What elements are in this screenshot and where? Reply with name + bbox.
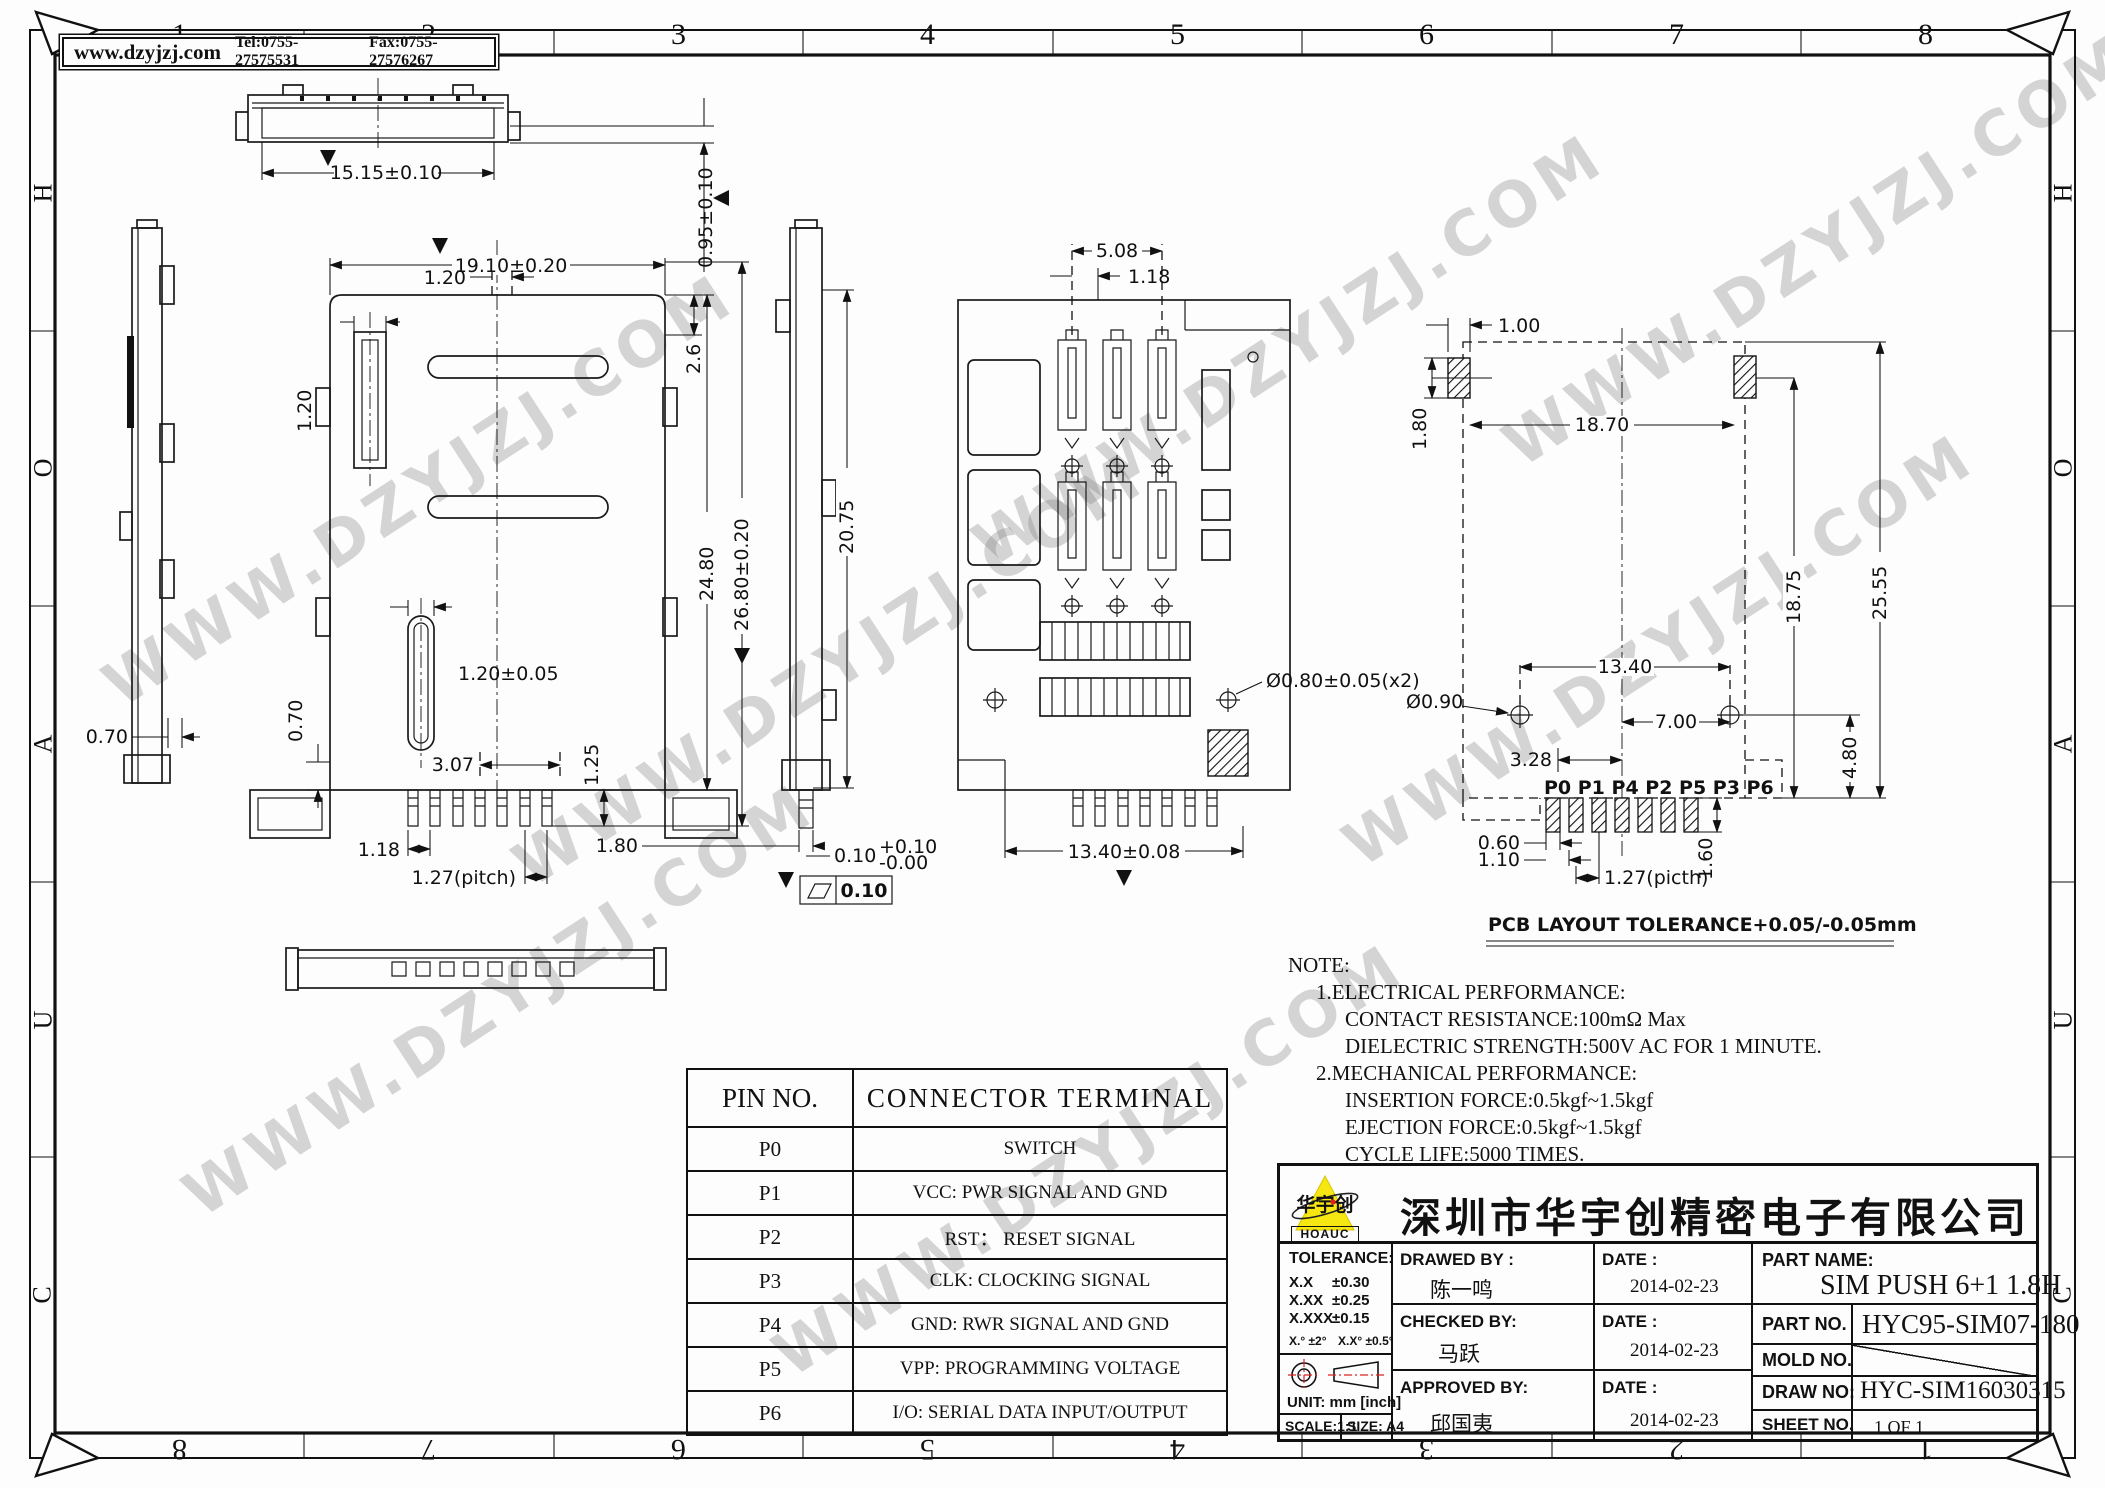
- dim-side-step: 0.70: [86, 726, 128, 748]
- zone-row: O: [2048, 459, 2078, 478]
- drawed-by-name: 陈一鸣: [1430, 1274, 1493, 1304]
- zone-col: 3: [671, 18, 686, 52]
- dim-main-307: 3.07: [432, 754, 474, 776]
- checked-by-name: 马跃: [1438, 1338, 1480, 1368]
- view-front: 5.08 1.18 Ø0.80±0.05(x2) 13.40±0.08: [958, 240, 1420, 886]
- note-title: NOTE:: [1288, 952, 1822, 979]
- zone-row: C: [28, 1286, 58, 1303]
- view-side-left: 0.70: [86, 220, 200, 783]
- dim-pcb-480: 4.80: [1839, 737, 1861, 779]
- date-label: DATE :: [1602, 1250, 1657, 1270]
- dim-main-width: 19.10±0.20: [455, 255, 568, 277]
- draw-no-label: DRAW NO:: [1762, 1382, 1855, 1403]
- zone-col: 8: [172, 1432, 187, 1466]
- dim-pcb-pitch: 1.27(picth): [1604, 867, 1708, 889]
- zone-col: 8: [1918, 18, 1933, 52]
- dim-pcb-100: 1.00: [1498, 315, 1540, 337]
- drawing-sheet: WWW.DZYJZJ.COM WWW.DZYJZJ.COM WWW.DZYJZJ…: [0, 0, 2105, 1488]
- pcb-tolerance-note: PCB LAYOUT TOLERANCE+0.05/-0.05mm: [1488, 914, 1917, 936]
- zone-col: 7: [1669, 18, 1684, 52]
- dim-main-switch-slot: 1.20±0.05: [458, 663, 559, 685]
- pcb-pin-labels: P0 P1 P4 P2 P5 P3 P6: [1544, 777, 1774, 799]
- mold-no-label: MOLD NO.: [1762, 1350, 1852, 1371]
- part-name-label: PART NAME:: [1762, 1250, 1874, 1271]
- zone-col: 5: [1170, 18, 1185, 52]
- dim-pcb-1340: 13.40: [1598, 656, 1652, 678]
- note-line: EJECTION FORCE:0.5kgf~1.5kgf: [1345, 1114, 1822, 1141]
- logo-brand-text: HOAUC: [1291, 1226, 1359, 1242]
- date-label: DATE :: [1602, 1378, 1657, 1398]
- table-row: P5VPP: PROGRAMMING VOLTAGE: [688, 1346, 1226, 1390]
- note-line: DIELECTRIC STRENGTH:500V AC FOR 1 MINUTE…: [1345, 1033, 1822, 1060]
- date-label: DATE :: [1602, 1312, 1657, 1332]
- tol-r2-label: X.XX: [1289, 1292, 1323, 1309]
- logo-cn-text: 华宇创: [1296, 1193, 1353, 1216]
- pin-no: P1: [688, 1172, 854, 1214]
- hoauc-logo: 华宇创 HOAUC: [1288, 1174, 1362, 1240]
- pin-no: P0: [688, 1128, 854, 1170]
- pin-no: P5: [688, 1348, 854, 1390]
- dim-pcb-1875: 18.75: [1783, 570, 1805, 624]
- pin-no: P3: [688, 1260, 854, 1302]
- approved-date: 2014-02-23: [1630, 1410, 1719, 1432]
- tol-r2-value: ±0.25: [1332, 1292, 1369, 1309]
- table-row: P0SWITCH: [688, 1126, 1226, 1170]
- pin-terminal: VCC: PWR SIGNAL AND GND: [854, 1172, 1226, 1214]
- table-row: P1VCC: PWR SIGNAL AND GND: [688, 1170, 1226, 1214]
- pin-table-header: PIN NO. CONNECTOR TERMINAL: [688, 1070, 1226, 1126]
- note-line: CONTACT RESISTANCE:100mΩ Max: [1345, 1006, 1822, 1033]
- view-top-profile: 15.15±0.10 0.95±0.10: [236, 78, 729, 272]
- zone-col: 4: [920, 18, 935, 52]
- header-contact-box: www.dzyjzj.com Tel:0755-27575531 Fax:075…: [62, 37, 496, 67]
- dim-front-width: 13.40±0.08: [1068, 841, 1181, 863]
- tol-r1-value: ±0.30: [1332, 1274, 1369, 1291]
- dim-top-width: 15.15±0.10: [330, 162, 443, 184]
- title-block: 华宇创 HOAUC 深圳市华宇创精密电子有限公司 TOLERANCE: X.X …: [1277, 1163, 2039, 1442]
- view-side-mid: 20.75 1.80 0.10 +0.10 -0.00 0.10: [596, 220, 938, 904]
- dim-flatness: 0.10: [841, 880, 888, 902]
- dim-side-len: 20.75: [836, 500, 858, 554]
- dim-front-hole: Ø0.80±0.05(x2): [1266, 670, 1420, 692]
- tol-r1-label: X.X: [1289, 1274, 1313, 1291]
- pin-terminal: RST： RESET SIGNAL: [854, 1216, 1226, 1258]
- zone-row: U: [2048, 1011, 2078, 1030]
- note-line: 2.MECHANICAL PERFORMANCE:: [1316, 1060, 1822, 1087]
- dim-main-slot: 1.20: [424, 267, 466, 289]
- dim-pcb-110: 1.10: [1478, 849, 1520, 871]
- zone-row: H: [2048, 184, 2078, 203]
- dim-main-corner: 2.6: [683, 344, 705, 374]
- projection-symbol: [1286, 1358, 1388, 1392]
- dim-main-step: 0.70: [285, 700, 307, 742]
- zone-row: O: [28, 459, 58, 478]
- unit-label: UNIT: mm [inch]: [1287, 1394, 1401, 1411]
- checked-by-label: CHECKED BY:: [1400, 1312, 1517, 1332]
- dim-side-180: 1.80: [596, 835, 638, 857]
- dim-front-118: 1.18: [1128, 266, 1170, 288]
- zone-row: H: [28, 184, 58, 203]
- dim-front-508: 5.08: [1096, 240, 1138, 262]
- tol-angle1: X.° ±2°: [1289, 1334, 1327, 1348]
- note-line: INSERTION FORCE:0.5kgf~1.5kgf: [1345, 1087, 1822, 1114]
- part-name-value: SIM PUSH 6+1 1.8H: [1820, 1270, 2061, 1302]
- tol-r3-value: ±0.15: [1332, 1310, 1369, 1327]
- dim-pcb-180: 1.80: [1409, 408, 1431, 450]
- size-label: SIZE: A4: [1347, 1418, 1404, 1434]
- website: www.dzyjzj.com: [74, 40, 221, 65]
- zone-col: 4: [1170, 1432, 1185, 1466]
- zone-row: A: [28, 735, 58, 754]
- dim-main-tab: 1.20: [294, 390, 316, 432]
- dim-main-body-len: 24.80: [696, 547, 718, 601]
- mold-no-empty-cell: [1851, 1345, 2039, 1377]
- sheet-no-label: SHEET NO.: [1762, 1415, 1854, 1435]
- dim-top-height: 0.95±0.10: [695, 167, 717, 268]
- dim-pcb-1870: 18.70: [1575, 414, 1629, 436]
- pin-terminal: I/O: SERIAL DATA INPUT/OUTPUT: [854, 1392, 1226, 1434]
- checked-date: 2014-02-23: [1630, 1340, 1719, 1362]
- dim-pcb-hole: Ø0.90: [1406, 691, 1463, 713]
- zone-row: A: [2048, 735, 2078, 754]
- view-bottom-profile: [286, 948, 666, 990]
- part-no-label: PART NO.: [1762, 1314, 1847, 1335]
- pin-no: P2: [688, 1216, 854, 1258]
- tol-r3-label: X.XXX: [1289, 1310, 1333, 1327]
- part-no-value: HYC95-SIM07-180: [1862, 1309, 2080, 1340]
- dim-side-010: 0.10: [834, 845, 876, 867]
- zone-col: 6: [671, 1432, 686, 1466]
- sheet-no-value: 1 OF 1: [1874, 1417, 1924, 1438]
- note-line: 1.ELECTRICAL PERFORMANCE:: [1316, 979, 1822, 1006]
- tolerance-label: TOLERANCE:: [1289, 1250, 1394, 1268]
- table-row: P6I/O: SERIAL DATA INPUT/OUTPUT: [688, 1390, 1226, 1434]
- tol-angle2: X.X° ±0.5°: [1338, 1334, 1394, 1348]
- dim-main-overall-len: 26.80±0.20: [731, 518, 753, 631]
- solder-pins-top-view: [408, 790, 552, 826]
- zone-col: 6: [1419, 18, 1434, 52]
- table-row: P2RST： RESET SIGNAL: [688, 1214, 1226, 1258]
- pcb-pads: [1546, 798, 1698, 832]
- view-pcb-layout: 1.00 1.80 18.70 18.75 25.55 4.80: [1406, 315, 1917, 946]
- table-row: P3CLK: CLOCKING SIGNAL: [688, 1258, 1226, 1302]
- view-top-main: 19.10±0.20 1.20 2.6 1.20 1.20±0.05 0.70: [250, 238, 753, 889]
- dim-main-pitch: 1.27(pitch): [412, 867, 516, 889]
- dim-pcb-328: 3.28: [1510, 749, 1552, 771]
- drawed-date: 2014-02-23: [1630, 1276, 1719, 1298]
- pin-no: P6: [688, 1392, 854, 1434]
- zone-col: 7: [421, 1432, 436, 1466]
- pin-table: PIN NO. CONNECTOR TERMINAL P0SWITCH P1VC…: [686, 1068, 1228, 1436]
- pin-table-col1-header: PIN NO.: [688, 1070, 854, 1126]
- dim-main-pin-len: 1.25: [581, 744, 603, 786]
- draw-no-value: HYC-SIM16030315: [1860, 1377, 2066, 1405]
- drawed-by-label: DRAWED BY :: [1400, 1250, 1514, 1270]
- dim-side-010-dn: -0.00: [879, 852, 928, 874]
- pin-terminal: CLK: CLOCKING SIGNAL: [854, 1260, 1226, 1302]
- company-name: 深圳市华宇创精密电子有限公司: [1400, 1184, 2030, 1244]
- note-block: NOTE: 1.ELECTRICAL PERFORMANCE: CONTACT …: [1288, 952, 1822, 1168]
- phone: Tel:0755-27575531: [235, 34, 355, 70]
- approved-by-label: APPROVED BY:: [1400, 1378, 1528, 1398]
- fax: Fax:0755-27576267: [369, 34, 494, 70]
- pin-terminal: GND: RWR SIGNAL AND GND: [854, 1304, 1226, 1346]
- dim-main-pin-gap: 1.18: [358, 839, 400, 861]
- dim-pcb-160: 1.60: [1695, 838, 1717, 880]
- zone-row: U: [28, 1011, 58, 1030]
- pin-terminal: SWITCH: [854, 1128, 1226, 1170]
- dim-pcb-700: 7.00: [1655, 711, 1697, 733]
- pin-terminal: VPP: PROGRAMMING VOLTAGE: [854, 1348, 1226, 1390]
- pin-no: P4: [688, 1304, 854, 1346]
- pin-table-col2-header: CONNECTOR TERMINAL: [854, 1070, 1226, 1126]
- table-row: P4GND: RWR SIGNAL AND GND: [688, 1302, 1226, 1346]
- zone-col: 5: [920, 1432, 935, 1466]
- dim-pcb-2555: 25.55: [1869, 566, 1891, 620]
- approved-by-name: 邱国夷: [1430, 1408, 1493, 1438]
